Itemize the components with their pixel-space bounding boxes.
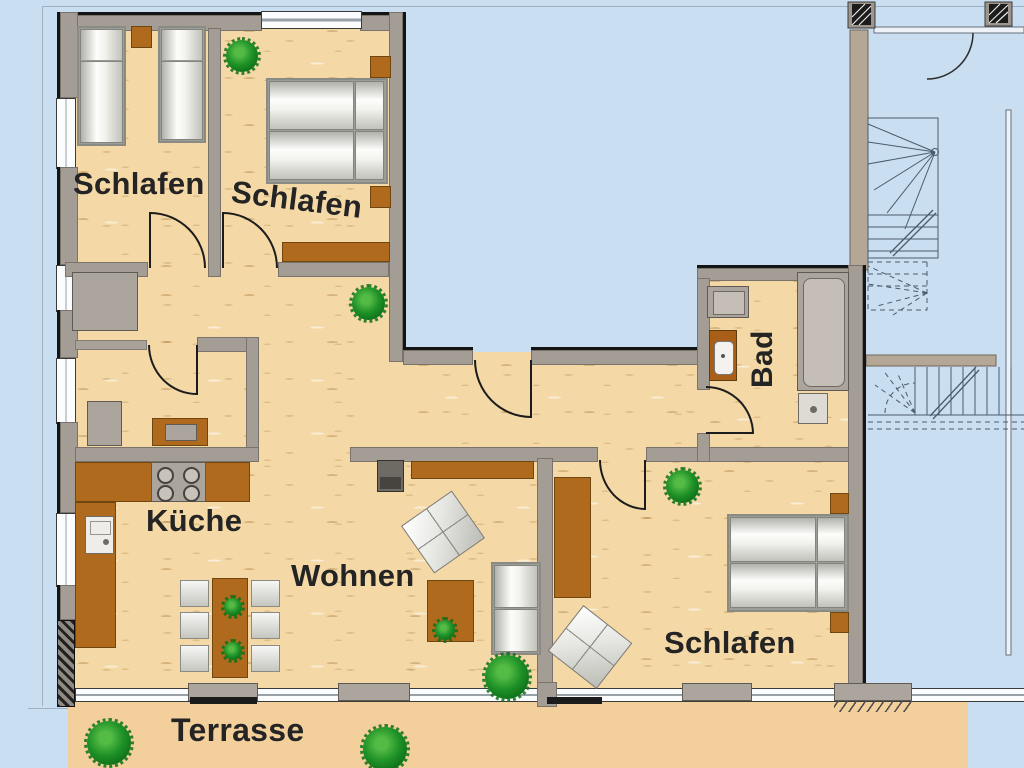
threshold-2 (547, 697, 602, 704)
nightstand-bedroom1 (131, 26, 152, 48)
bed-single-2 (158, 26, 206, 143)
stove (151, 462, 206, 502)
facade-slab-4 (834, 683, 912, 701)
toilet (709, 330, 737, 381)
wall-entry-b (531, 347, 703, 365)
facade-slab-3 (682, 683, 752, 701)
wall-left-1 (57, 12, 78, 98)
label-bath: Bad (746, 330, 780, 388)
plant-living-large (485, 655, 529, 699)
wall-bedrooms-divider (208, 28, 221, 277)
wall-bedroom2-right (389, 12, 406, 362)
kitchen-sink (85, 516, 114, 554)
eaves-line-left (42, 6, 43, 706)
wall-entry-a (403, 347, 473, 365)
label-kitchen: Küche (146, 503, 242, 539)
dining-chair-4 (251, 580, 280, 607)
label-terrace: Terrasse (171, 712, 304, 749)
wall-bedroom3-north (703, 447, 863, 462)
dining-chair-2 (180, 612, 209, 639)
dining-chair-3 (180, 645, 209, 672)
nightstand-bedroom2-bottom (370, 186, 391, 208)
bathtub (797, 272, 849, 391)
nightstand-bedroom3-top (830, 493, 849, 514)
wall-east (848, 265, 866, 690)
plant-table-1 (224, 598, 242, 616)
sideboard-bedroom2 (282, 242, 390, 262)
wardrobe-bedroom3 (554, 477, 591, 598)
washbasin (707, 286, 749, 318)
wardrobe-hall (72, 272, 138, 331)
bush-terrace-1 (87, 721, 131, 765)
window-left-4 (56, 513, 76, 587)
label-bedroom1: Schlafen (73, 166, 205, 202)
dining-chair-6 (251, 645, 280, 672)
dining-table (212, 578, 248, 678)
nightstand-bedroom2-top (370, 56, 391, 78)
plant-coffee-table (435, 620, 455, 640)
threshold-1 (190, 697, 257, 704)
plant-table-2 (224, 642, 242, 660)
washing-machine (798, 393, 828, 424)
floor-corridor (405, 352, 703, 462)
sideboard-living (411, 461, 534, 479)
dining-chair-5 (251, 612, 280, 639)
window-top (261, 11, 362, 29)
dining-chair-1 (180, 580, 209, 607)
bed-double-2 (266, 78, 388, 184)
window-left-3 (56, 358, 76, 424)
plant-hall (352, 287, 385, 320)
bed-double-3 (727, 514, 849, 612)
bush-terrace-2 (363, 727, 407, 768)
wall-storage-east (246, 337, 259, 462)
plant-bedroom2 (226, 40, 258, 72)
eaves-line-bottom-left (28, 708, 70, 709)
wall-kitchen-north (75, 447, 259, 462)
appliance-storage (152, 418, 208, 446)
wall-bedrooms-south-b (278, 262, 389, 277)
wall-living-north-b (646, 447, 703, 462)
wall-storage-north-a (75, 340, 147, 350)
label-bedroom3: Schlafen (664, 625, 796, 661)
nightstand-bedroom3-bottom (830, 612, 849, 633)
plant-bedroom3 (666, 470, 699, 503)
facade-slab-2 (338, 683, 410, 701)
tv-unit (377, 460, 404, 492)
floor-plan: Schlafen Schlafen Küche Wohnen Bad Schla… (0, 0, 1024, 768)
wall-bath-west-b (697, 433, 710, 462)
window-left-1 (56, 98, 76, 169)
cabinet-storage (87, 401, 122, 446)
bed-single-1 (77, 26, 126, 146)
wall-left-hatched (57, 620, 75, 707)
sofa (491, 562, 541, 655)
facade-hatch-strip (834, 701, 912, 712)
label-living: Wohnen (291, 558, 414, 594)
